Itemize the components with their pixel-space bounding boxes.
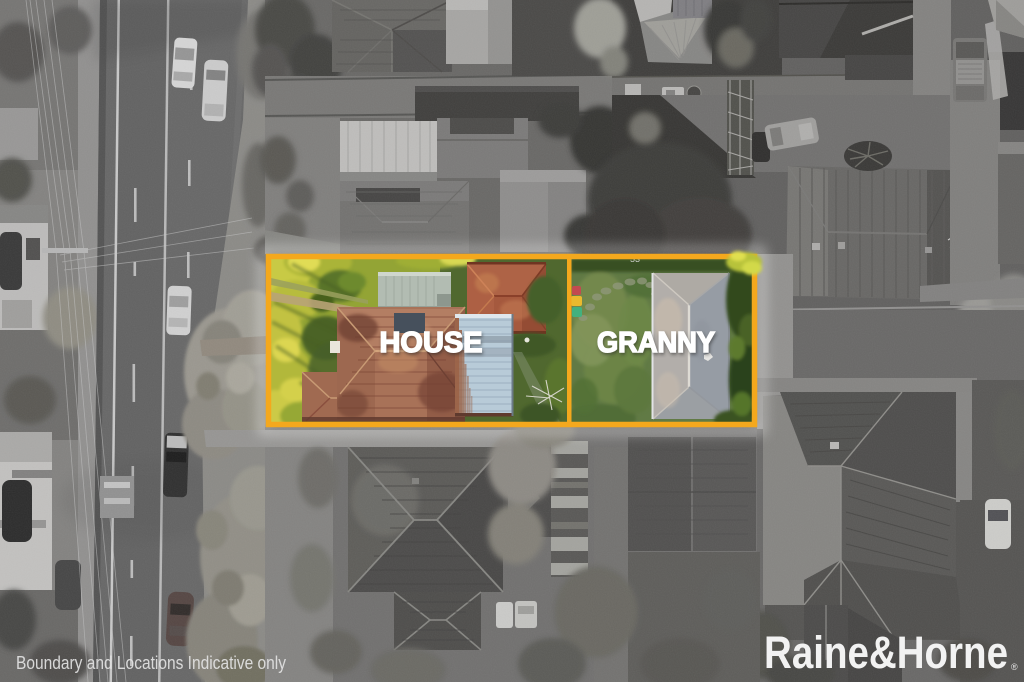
svg-text:®: ® — [1011, 662, 1018, 672]
svg-text:Boundary and Locations Indicat: Boundary and Locations Indicative only — [16, 652, 287, 673]
svg-text:HOUSE: HOUSE — [380, 327, 483, 359]
svg-text:GRANNY: GRANNY — [597, 327, 715, 359]
svg-text:Raine&Horne: Raine&Horne — [764, 627, 1008, 678]
